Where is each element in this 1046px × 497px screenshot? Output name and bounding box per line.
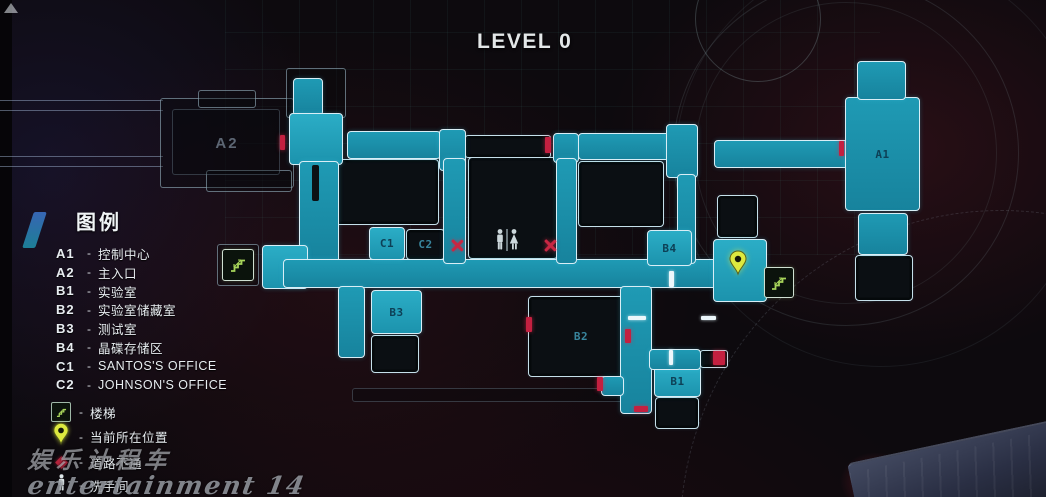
corridor-outline-line: [0, 110, 163, 111]
corridor-outline-line: [0, 100, 163, 101]
door-marker: [669, 271, 674, 287]
room-dark-below-b1: [655, 397, 699, 429]
blocked-marker: [545, 137, 551, 153]
stairs-icon: [51, 402, 71, 422]
stairs-icon: [764, 267, 794, 298]
corridor-outline-bottom: [352, 388, 624, 402]
legend-separator: -: [79, 455, 83, 469]
level-title: LEVEL 0: [477, 30, 572, 54]
legend-separator: -: [87, 378, 91, 392]
room-b4: B4: [647, 230, 692, 266]
legend-name: 实验室: [98, 282, 137, 301]
room-a1-label: A1: [875, 148, 889, 161]
blocked-marker: [839, 141, 844, 156]
legend-separator: -: [87, 340, 91, 354]
blocked-x-marker: [543, 238, 558, 253]
legend-name: 实验室储藏室: [98, 300, 176, 319]
game-map-screen: LEVEL 0 A2 C2 B2 B4 A1: [0, 0, 1046, 497]
legend-item-b3: B3 - 测试室: [44, 319, 227, 338]
legend-item-c2: C2 - JOHNSON'S OFFICE: [44, 376, 227, 395]
legend-name: 晶碟存储区: [98, 338, 163, 357]
room-c1-label: C1: [380, 237, 394, 250]
legend-code: B4: [44, 340, 80, 355]
door-marker: [701, 316, 716, 320]
blocked-marker: [625, 329, 631, 343]
legend-item-c1: C1 - SANTOS'S OFFICE: [44, 357, 227, 376]
corridor-b1-left-stub: [601, 376, 624, 396]
corner-glyph: [4, 3, 18, 13]
corridor-b3-vertical: [338, 286, 365, 358]
legend-name: 楼梯: [90, 403, 116, 422]
corridor-outline-line: [0, 166, 163, 167]
restroom-icon: [56, 474, 67, 496]
legend-separator: -: [87, 322, 91, 336]
legend-name: JOHNSON'S OFFICE: [98, 378, 227, 392]
legend-code: A1: [44, 246, 80, 261]
legend-code: B2: [44, 302, 80, 317]
legend-name: 当前所在位置: [90, 427, 168, 446]
corridor-b1-top: [649, 349, 701, 370]
corridor-slot: [312, 165, 319, 201]
room-b2-label: B2: [574, 330, 588, 343]
legend-item-location: - 当前所在位置: [44, 423, 227, 450]
room-b1: B1: [654, 366, 701, 397]
blocked-marker: [280, 135, 285, 150]
room-b1-label: B1: [670, 375, 684, 388]
legend-separator: -: [79, 405, 83, 419]
blocked-marker: [526, 317, 532, 332]
corridor-b1-column: [620, 286, 652, 414]
legend-code: B1: [44, 283, 80, 298]
legend-separator: -: [87, 284, 91, 298]
legend-name: SANTOS'S OFFICE: [98, 359, 217, 373]
corridor-vertical-2: [556, 158, 577, 264]
room-c1: C1: [369, 227, 405, 260]
room-dark-3: [717, 195, 758, 238]
room-a1-bottom: [858, 213, 908, 255]
room-b4-label: B4: [662, 242, 676, 255]
legend-panel: 图例 A1 - 控制中心 A2 - 主入口 B1 - 实验室 B2 - 实验室储…: [44, 206, 227, 496]
room-b2: B2: [528, 296, 634, 377]
room-c2-label: C2: [418, 238, 432, 251]
legend-separator: -: [79, 430, 83, 444]
legend-code: A2: [44, 265, 80, 280]
legend-item-a2: A2 - 主入口: [44, 263, 227, 282]
location-pin-icon: [53, 422, 69, 451]
blocked-marker: [597, 377, 603, 391]
legend-code: C2: [44, 377, 80, 392]
legend-name: 测试室: [98, 319, 137, 338]
legend-item-b1: B1 - 实验室: [44, 282, 227, 301]
blocked-marker: [634, 406, 648, 412]
corridor-to-a1: [714, 140, 849, 168]
room-a2-bump: [198, 90, 256, 108]
blocked-x-marker: [450, 238, 465, 253]
legend-name: 主入口: [98, 263, 137, 282]
room-a1-top: [857, 61, 906, 100]
legend-item-blocked: - 道路不通: [44, 450, 227, 474]
legend-separator: -: [79, 478, 83, 492]
legend-separator: -: [87, 303, 91, 317]
door-marker: [669, 350, 673, 365]
legend-header: 图例: [76, 206, 227, 235]
room-c2: C2: [406, 229, 445, 260]
blocked-marker: [713, 351, 725, 365]
legend-code: C1: [44, 359, 80, 374]
legend-separator: -: [87, 265, 91, 279]
room-a2-inner-outline: [172, 109, 280, 175]
corridor-dark-top: [465, 135, 551, 158]
corridor-junction-3: [666, 124, 698, 178]
legend-item-b2: B2 - 实验室储藏室: [44, 300, 227, 319]
corridor-outline-line: [0, 156, 163, 157]
restroom-icon: [492, 228, 522, 257]
legend-code: B3: [44, 321, 80, 336]
room-dark-below-a1: [855, 255, 913, 301]
room-dark-1: [333, 159, 439, 225]
room-b3: B3: [371, 290, 422, 334]
legend-name: 控制中心: [98, 244, 150, 263]
legend-separator: -: [87, 359, 91, 373]
room-dark-2: [578, 161, 664, 227]
corridor-top-1: [347, 131, 441, 159]
room-small-topleft: [293, 78, 323, 116]
corridor-top-2: [578, 133, 672, 160]
room-b3-label: B3: [389, 306, 403, 319]
legend-item-restroom: - 洗手间: [44, 474, 227, 496]
room-a1: A1: [845, 97, 920, 211]
room-dark-below-b3: [371, 335, 419, 373]
location-pin-icon: [729, 250, 747, 281]
legend-item-a1: A1 - 控制中心: [44, 244, 227, 263]
legend-name: 洗手间: [90, 476, 129, 495]
legend-item-stairs: - 楼梯: [44, 401, 227, 423]
legend-name: 道路不通: [90, 453, 142, 472]
room-left-big: [289, 113, 343, 165]
left-dark-band: [0, 0, 12, 497]
legend-item-b4: B4 - 晶碟存储区: [44, 338, 227, 357]
legend-separator: -: [87, 246, 91, 260]
door-marker: [628, 316, 646, 320]
blocked-icon: [55, 456, 68, 469]
